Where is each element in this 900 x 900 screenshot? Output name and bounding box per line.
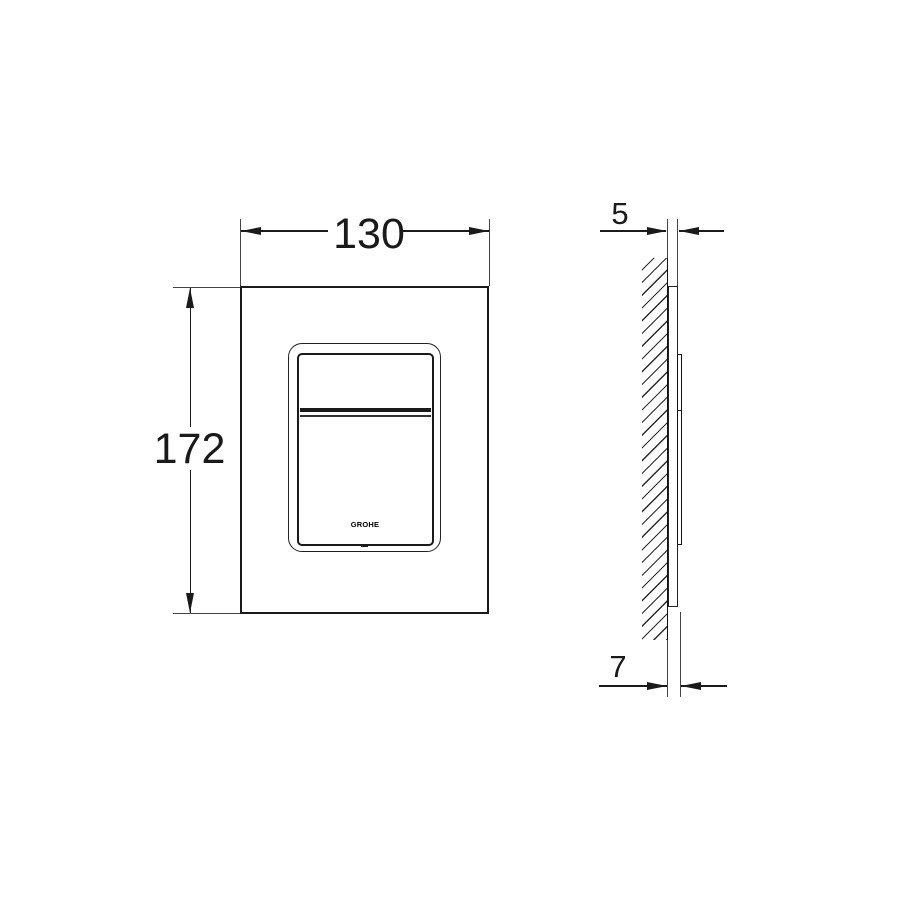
dim-label-total-depth: 7	[598, 651, 638, 682]
offset-arrow-left-icon	[679, 227, 699, 235]
dim-label-plate-offset: 5	[600, 198, 640, 229]
depth-arrow-right-icon	[647, 682, 667, 690]
button-side-profile	[677, 354, 682, 545]
wall-hatch	[642, 258, 667, 640]
depth-arrow-left-icon	[681, 682, 701, 690]
offset-arrow-right-icon	[647, 227, 667, 235]
side-view: 5 7	[0, 0, 900, 900]
button-side-divider-notch	[678, 410, 682, 411]
offset-extension-line-left	[667, 219, 668, 258]
depth-extension-line-left	[667, 640, 668, 697]
technical-drawing: GROHE 130 172 5	[0, 0, 900, 900]
